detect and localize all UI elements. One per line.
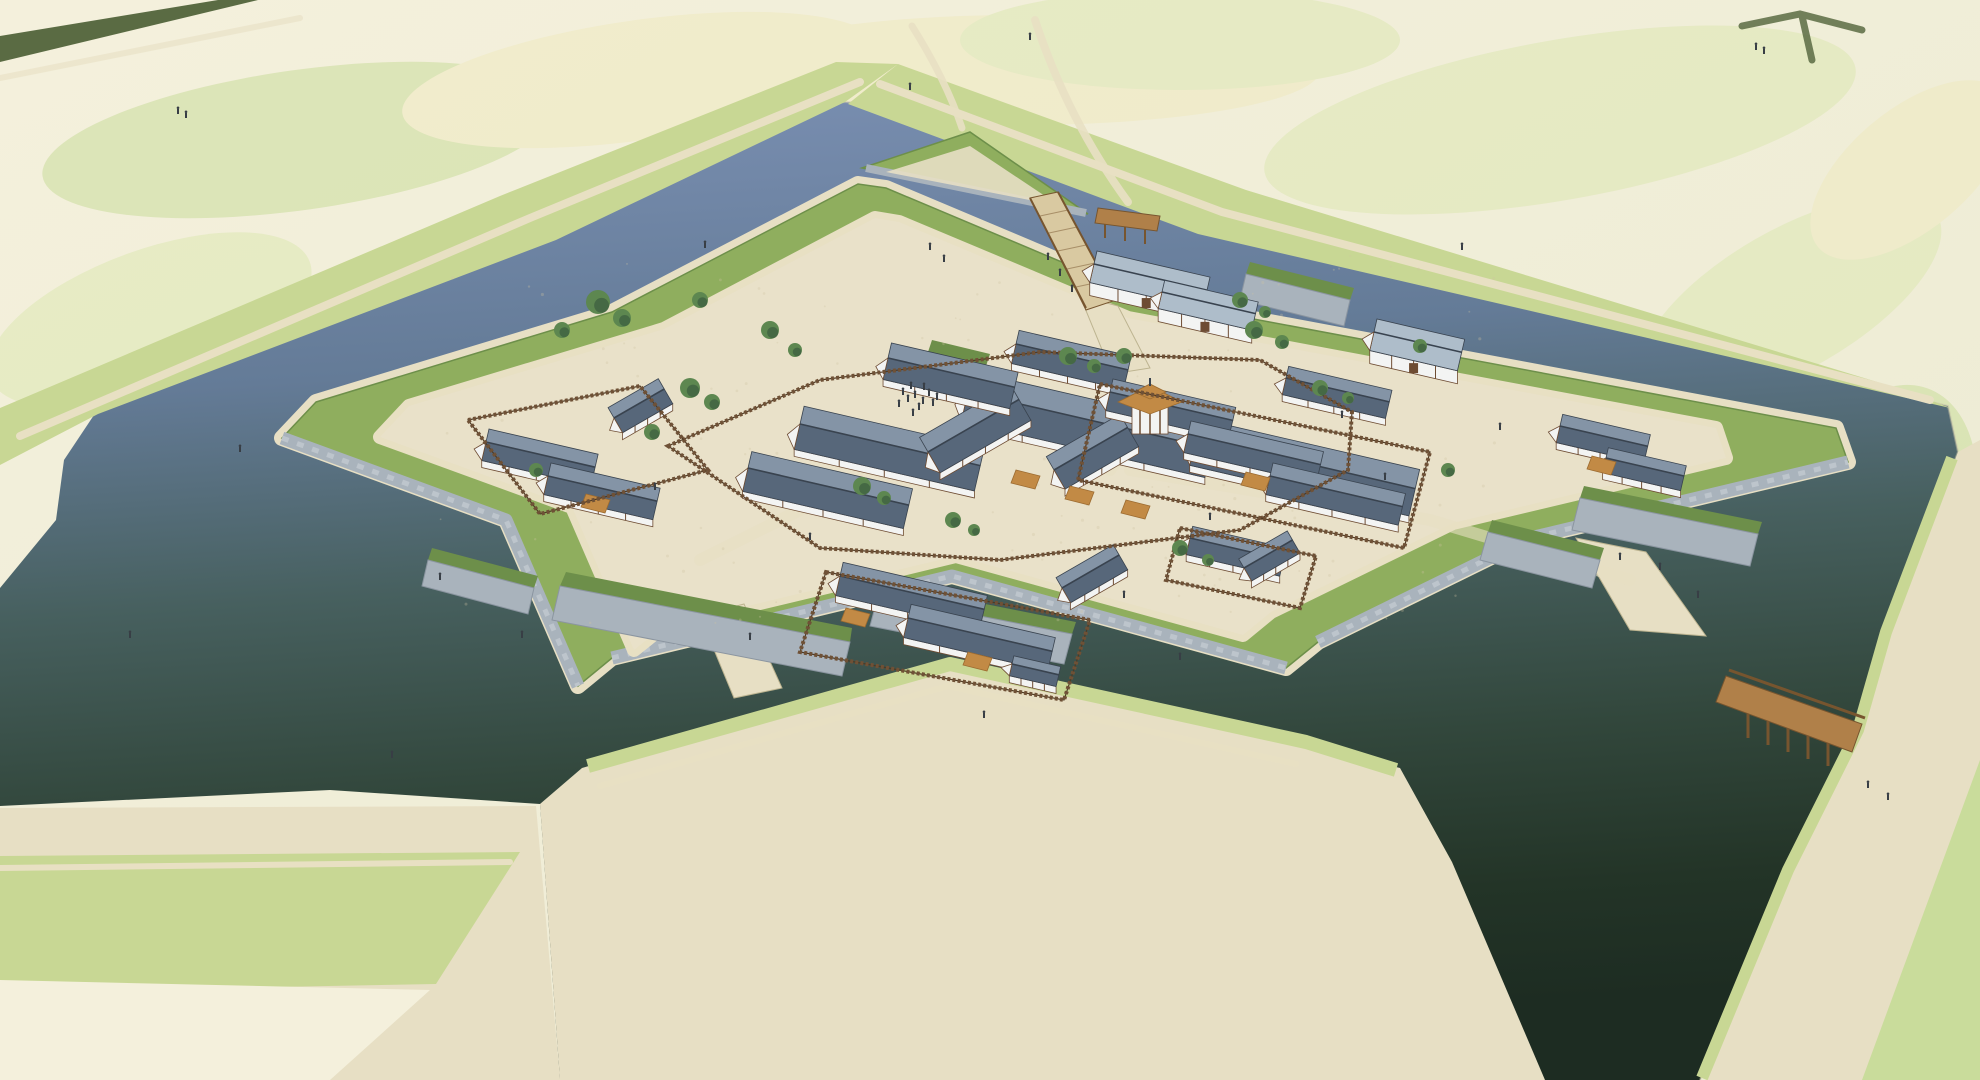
tree <box>1202 554 1214 566</box>
person-figure <box>922 397 925 405</box>
tree <box>1413 339 1427 353</box>
person-figure <box>177 107 180 115</box>
tree <box>877 491 891 505</box>
person-figure <box>1059 269 1062 277</box>
person-figure <box>1755 43 1758 51</box>
tree <box>554 322 570 338</box>
storehouse-door <box>1142 299 1150 308</box>
tree <box>1259 306 1271 318</box>
person-figure <box>129 631 132 639</box>
person-figure <box>1179 653 1182 661</box>
person-figure <box>704 241 707 249</box>
star-fort-painting <box>0 0 1980 1080</box>
tree <box>1342 392 1354 404</box>
tree <box>853 477 871 495</box>
person-figure <box>1763 47 1766 55</box>
person-figure <box>439 573 442 581</box>
person-figure <box>1341 411 1344 419</box>
person-figure <box>521 631 524 639</box>
person-figure <box>1029 33 1032 41</box>
person-figure <box>809 533 812 541</box>
person-figure <box>1384 473 1387 481</box>
person-figure <box>936 393 939 401</box>
person-figure <box>1071 285 1074 293</box>
person-figure <box>928 389 931 397</box>
person-figure <box>912 409 915 417</box>
tree <box>613 309 631 327</box>
person-figure <box>929 243 932 251</box>
tree <box>680 378 700 398</box>
person-figure <box>910 382 913 390</box>
tree <box>1441 463 1455 477</box>
tree <box>529 463 543 477</box>
person-figure <box>907 395 910 403</box>
person-figure <box>1499 423 1502 431</box>
person-figure <box>185 111 188 119</box>
tree <box>1059 347 1077 365</box>
person-figure <box>914 391 917 399</box>
tree <box>788 343 802 357</box>
tree <box>1087 359 1101 373</box>
person-figure <box>1123 591 1126 599</box>
person-figure <box>749 633 752 641</box>
storehouse-door <box>1201 322 1209 331</box>
storehouse-door <box>1410 364 1418 373</box>
tree <box>1312 380 1328 396</box>
tree <box>704 394 720 410</box>
tree <box>692 292 708 308</box>
fortress-illustration <box>0 0 1980 1080</box>
person-figure <box>654 483 657 491</box>
person-figure <box>1209 513 1212 521</box>
person-figure <box>943 255 946 263</box>
person-figure <box>1887 793 1890 801</box>
tree <box>1172 540 1188 556</box>
person-figure <box>1697 591 1700 599</box>
tree <box>644 424 660 440</box>
person-figure <box>898 400 901 408</box>
person-figure <box>923 383 926 391</box>
person-figure <box>983 711 986 719</box>
person-figure <box>1619 553 1622 561</box>
person-figure <box>239 445 242 453</box>
tree <box>586 290 610 314</box>
tree <box>1232 292 1248 308</box>
person-figure <box>1659 563 1662 571</box>
person-figure <box>902 388 905 396</box>
tree <box>761 321 779 339</box>
person-figure <box>1047 253 1050 261</box>
tree <box>968 524 980 536</box>
tree <box>1116 348 1132 364</box>
tree <box>1275 335 1289 349</box>
tree <box>1245 321 1263 339</box>
person-figure <box>932 399 935 407</box>
person-figure <box>1867 781 1870 789</box>
person-figure <box>1461 243 1464 251</box>
person-figure <box>909 83 912 91</box>
tree <box>945 512 961 528</box>
person-figure <box>918 403 921 411</box>
person-figure <box>391 751 394 759</box>
